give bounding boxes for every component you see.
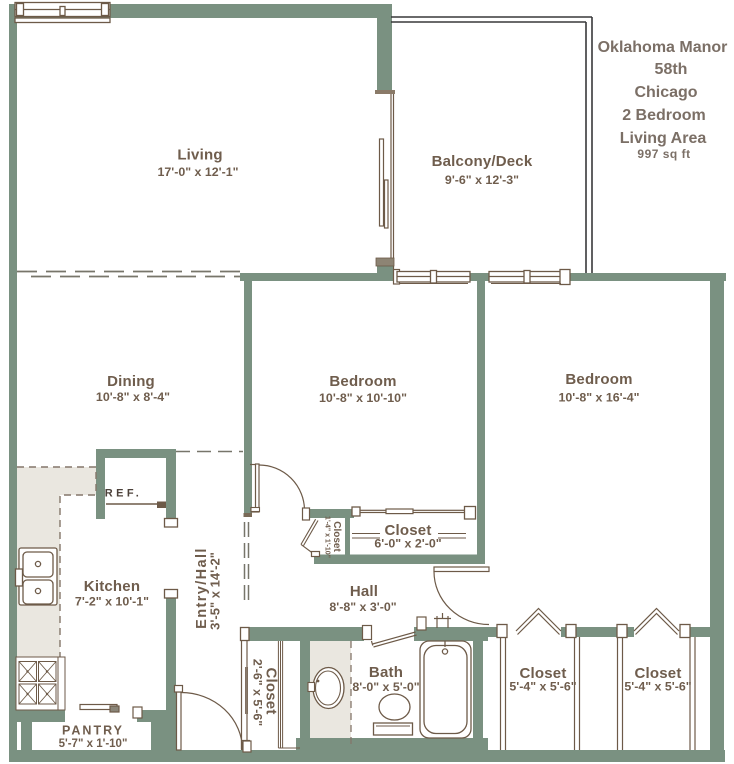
svg-text:17'-0" x 12'-1": 17'-0" x 12'-1" bbox=[157, 165, 238, 179]
svg-text:Dining: Dining bbox=[107, 373, 155, 390]
svg-text:Bedroom: Bedroom bbox=[329, 373, 396, 390]
svg-text:10'-8" x 8'-4": 10'-8" x 8'-4" bbox=[96, 390, 170, 404]
svg-text:Bath: Bath bbox=[369, 664, 403, 681]
svg-text:Oklahoma Manor: Oklahoma Manor bbox=[598, 39, 728, 56]
svg-text:7'-2" x 10'-1": 7'-2" x 10'-1" bbox=[75, 595, 149, 609]
svg-text:REF.: REF. bbox=[105, 488, 142, 500]
svg-text:8'-8" x 3'-0": 8'-8" x 3'-0" bbox=[329, 600, 396, 614]
svg-text:Bedroom: Bedroom bbox=[565, 371, 632, 388]
svg-text:2'-6" x 5'-6": 2'-6" x 5'-6" bbox=[250, 659, 264, 726]
svg-text:8'-0" x 5'-0": 8'-0" x 5'-0" bbox=[352, 680, 419, 694]
svg-text:10'-8" x 10'-10": 10'-8" x 10'-10" bbox=[319, 391, 407, 405]
svg-text:3'-5" x 14'-2": 3'-5" x 14'-2" bbox=[208, 552, 223, 630]
svg-text:Living: Living bbox=[177, 147, 222, 164]
svg-text:997 sq ft: 997 sq ft bbox=[637, 147, 690, 161]
svg-text:Kitchen: Kitchen bbox=[84, 578, 140, 595]
svg-text:Closet: Closet bbox=[331, 521, 342, 552]
svg-text:10'-8" x 16'-4": 10'-8" x 16'-4" bbox=[558, 391, 639, 405]
svg-text:58th: 58th bbox=[655, 61, 688, 78]
svg-text:5'-4" x 5'-6": 5'-4" x 5'-6" bbox=[509, 680, 576, 694]
svg-text:2 Bedroom: 2 Bedroom bbox=[622, 107, 706, 124]
svg-text:6'-0" x 2'-0": 6'-0" x 2'-0" bbox=[374, 537, 441, 551]
svg-text:Balcony/Deck: Balcony/Deck bbox=[432, 153, 533, 170]
svg-text:1'-4" x 1'-10": 1'-4" x 1'-10" bbox=[324, 516, 331, 558]
svg-text:5'-7" x 1'-10": 5'-7" x 1'-10" bbox=[59, 738, 128, 750]
svg-text:9'-6" x 12'-3": 9'-6" x 12'-3" bbox=[445, 173, 519, 187]
svg-text:5'-4" x 5'-6": 5'-4" x 5'-6" bbox=[624, 680, 691, 694]
svg-text:Living Area: Living Area bbox=[620, 130, 707, 147]
svg-text:Hall: Hall bbox=[350, 583, 378, 600]
svg-text:Chicago: Chicago bbox=[634, 84, 697, 101]
svg-text:PANTRY: PANTRY bbox=[62, 724, 124, 738]
